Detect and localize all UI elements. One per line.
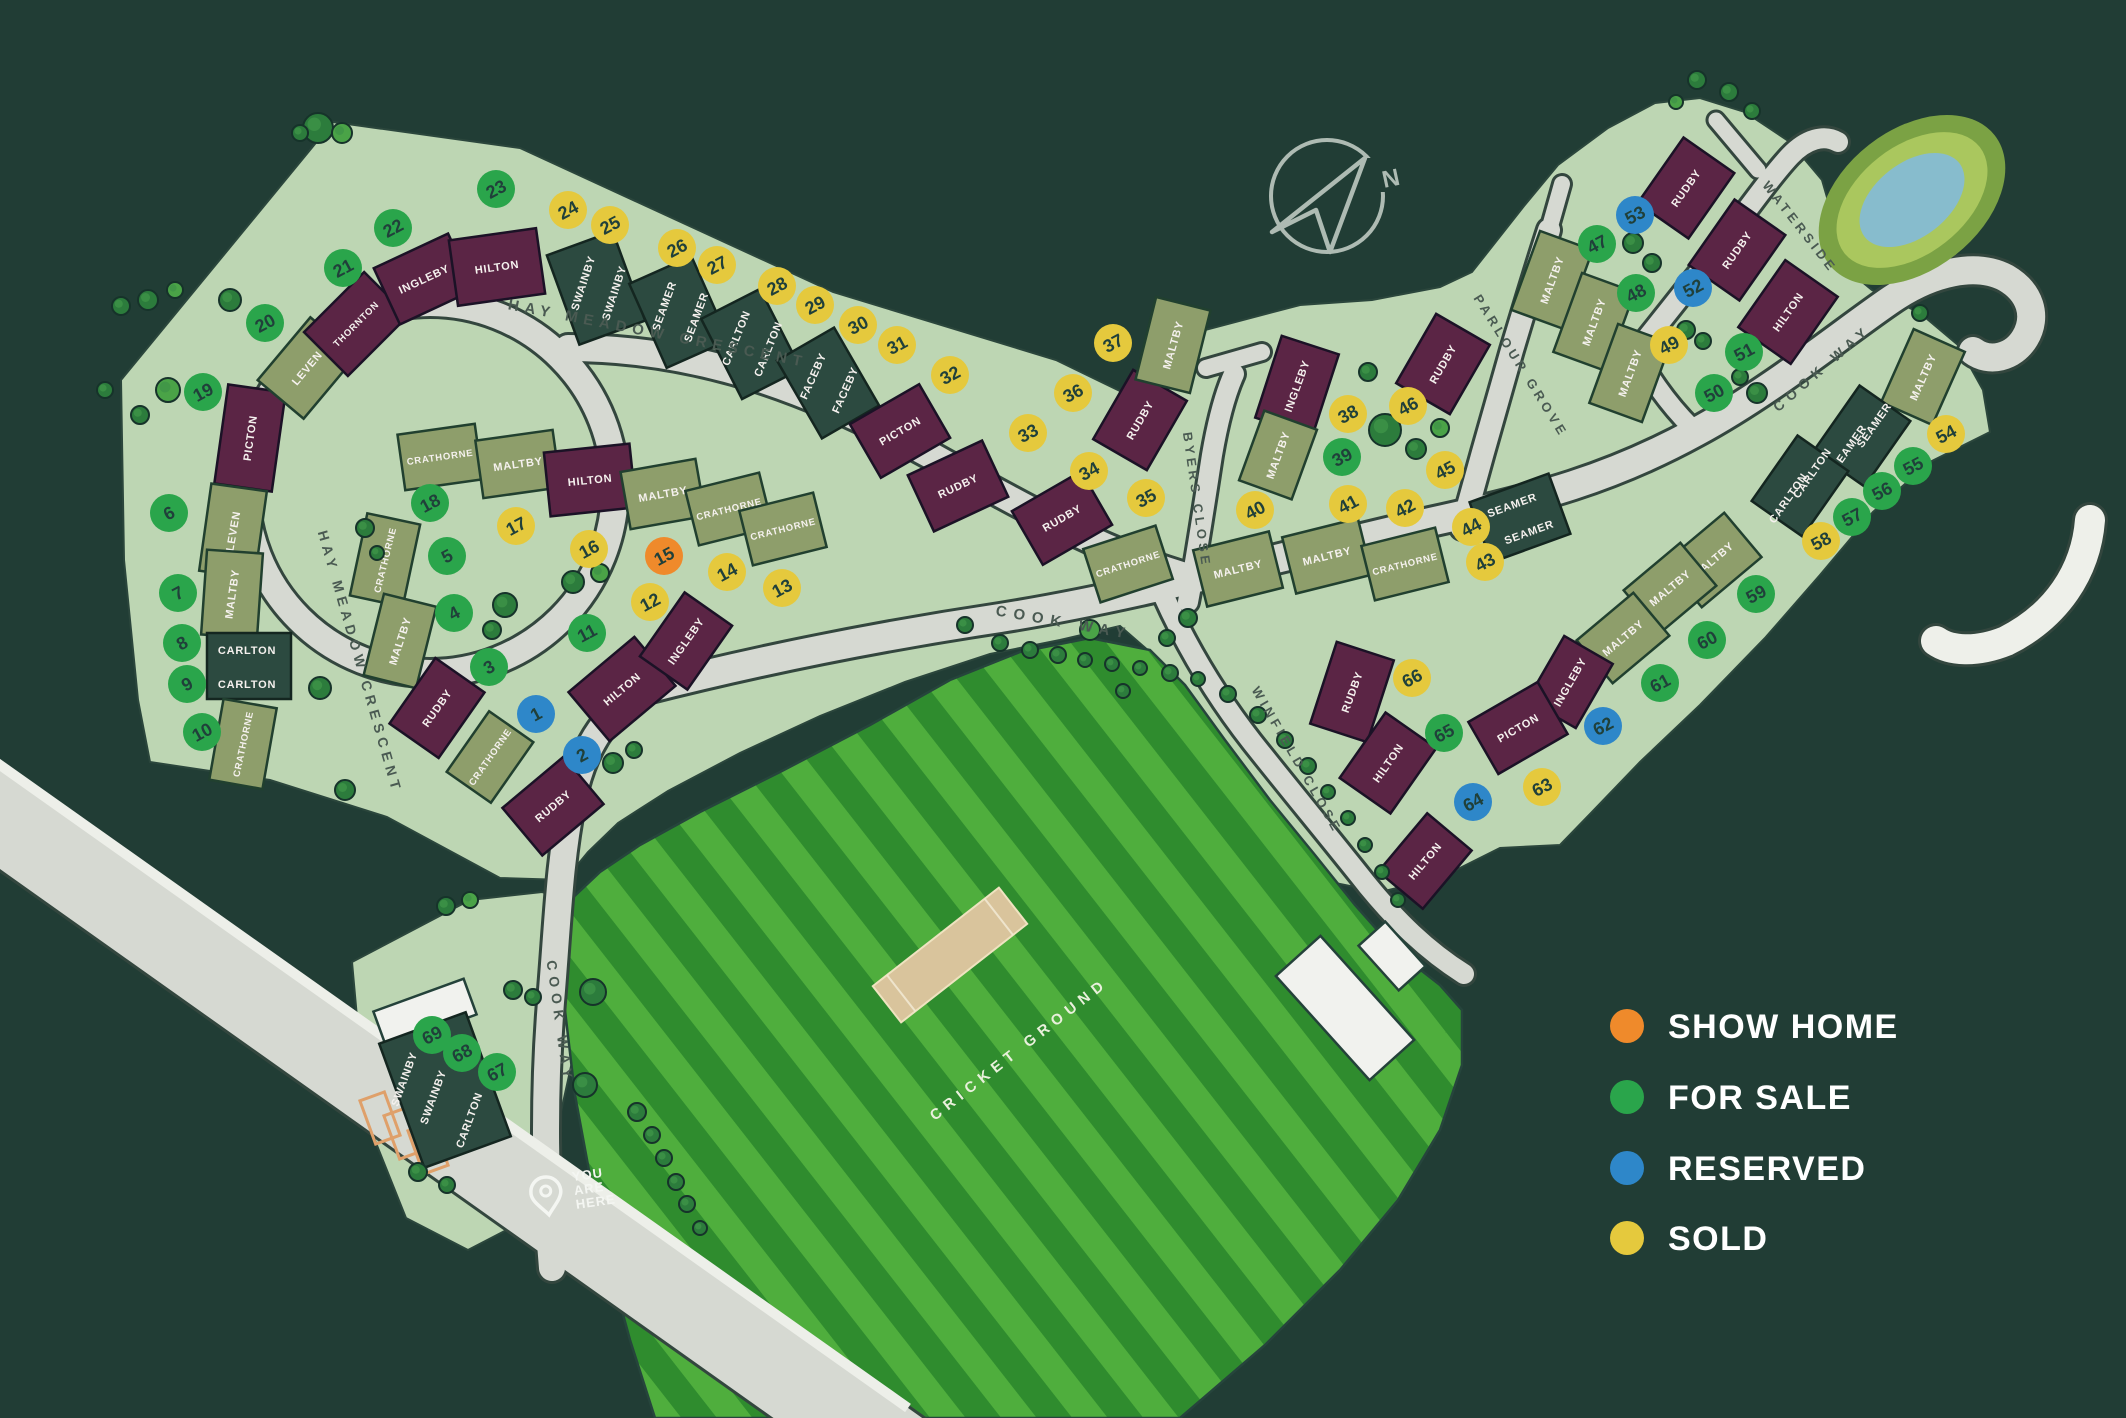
plot-61[interactable]: 61: [1641, 664, 1679, 702]
tree-highlight: [1052, 649, 1059, 656]
tree-highlight: [1362, 366, 1370, 374]
tree-highlight: [1393, 895, 1399, 901]
legend-label-for-sale: FOR SALE: [1668, 1079, 1852, 1117]
plot-62[interactable]: 62: [1584, 707, 1622, 745]
plot-55[interactable]: 55: [1894, 447, 1932, 485]
plot-30[interactable]: 30: [839, 306, 877, 344]
tree-highlight: [1626, 236, 1635, 245]
legend-swatch-show-home: [1610, 1009, 1644, 1043]
legend-label-sold: SOLD: [1668, 1220, 1768, 1258]
tree-highlight: [1182, 612, 1190, 620]
plot-44[interactable]: 44: [1452, 508, 1490, 546]
tree-highlight: [1252, 709, 1259, 716]
plot-12[interactable]: 12: [631, 583, 669, 621]
tree-highlight: [464, 894, 471, 901]
tree-highlight: [1377, 867, 1383, 873]
tree-highlight: [1914, 307, 1921, 314]
tree-highlight: [372, 548, 378, 554]
tree-highlight: [1080, 655, 1086, 661]
tree-highlight: [440, 900, 448, 908]
plot-32[interactable]: 32: [931, 356, 969, 394]
plot-16[interactable]: 16: [570, 530, 608, 568]
plot-28[interactable]: 28: [758, 267, 796, 305]
tree-highlight: [1723, 86, 1731, 94]
plot-51[interactable]: 51: [1725, 333, 1763, 371]
tree-highlight: [1750, 386, 1759, 395]
tree-highlight: [1360, 840, 1366, 846]
tree-highlight: [695, 1223, 701, 1229]
plot-42[interactable]: 42: [1386, 489, 1424, 527]
plot-2[interactable]: 2: [563, 736, 601, 774]
tree-highlight: [527, 991, 534, 998]
plot-23[interactable]: 23: [477, 170, 515, 208]
plot-13[interactable]: 13: [763, 569, 801, 607]
tree-highlight: [1222, 688, 1229, 695]
tree-highlight: [594, 567, 602, 575]
tree-highlight: [1161, 632, 1168, 639]
plot-39[interactable]: 39: [1323, 438, 1361, 476]
plot-9[interactable]: 9: [168, 665, 206, 703]
plot-49[interactable]: 49: [1650, 326, 1688, 364]
tree-highlight: [134, 409, 142, 417]
tree-highlight: [1434, 422, 1442, 430]
plot-63[interactable]: 63: [1523, 768, 1561, 806]
tree-highlight: [222, 292, 232, 302]
plot-36[interactable]: 36: [1054, 374, 1092, 412]
tree-highlight: [646, 1129, 653, 1136]
plot-58[interactable]: 58: [1802, 522, 1840, 560]
tree-highlight: [1671, 97, 1677, 103]
tree-highlight: [312, 680, 322, 690]
plot-50[interactable]: 50: [1695, 374, 1733, 412]
tree-highlight: [1646, 257, 1654, 265]
legend-swatch-for-sale: [1610, 1080, 1644, 1114]
tree-highlight: [507, 984, 515, 992]
development-map: PICTONLEVENTHORNTONINGLEBYHILTONSWAINBYS…: [0, 0, 2126, 1418]
tree-highlight: [994, 637, 1001, 644]
plot-47[interactable]: 47: [1578, 225, 1616, 263]
tree-highlight: [565, 574, 575, 584]
tree-highlight: [1343, 813, 1349, 819]
tree-highlight: [658, 1152, 665, 1159]
plot-45[interactable]: 45: [1426, 451, 1464, 489]
plot-69[interactable]: 69: [413, 1016, 451, 1054]
plot-26[interactable]: 26: [658, 229, 696, 267]
plot-31[interactable]: 31: [878, 326, 916, 364]
plot-57[interactable]: 57: [1833, 498, 1871, 536]
plot-38[interactable]: 38: [1329, 395, 1367, 433]
plot-34[interactable]: 34: [1070, 452, 1108, 490]
legend-swatch-sold: [1610, 1221, 1644, 1255]
tree-highlight: [441, 1179, 448, 1186]
plot-4[interactable]: 4: [435, 594, 473, 632]
plot-1[interactable]: 1: [517, 695, 555, 733]
tree-highlight: [681, 1198, 688, 1205]
house-label: CARLTON: [218, 679, 276, 691]
tree-highlight: [1691, 74, 1699, 82]
plot-11[interactable]: 11: [568, 614, 606, 652]
plot-54[interactable]: 54: [1927, 415, 1965, 453]
tree-highlight: [338, 783, 347, 792]
plot-3[interactable]: 3: [470, 648, 508, 686]
tree-highlight: [628, 744, 635, 751]
plot-24[interactable]: 24: [549, 191, 587, 229]
tree-highlight: [497, 597, 508, 608]
tree-highlight: [169, 284, 176, 291]
tree-highlight: [99, 384, 106, 391]
tree-highlight: [584, 983, 596, 995]
tree-highlight: [412, 1166, 420, 1174]
plot-53[interactable]: 53: [1616, 196, 1654, 234]
plot-43[interactable]: 43: [1466, 543, 1504, 581]
plot-21[interactable]: 21: [324, 249, 362, 287]
plot-37[interactable]: 37: [1094, 324, 1132, 362]
plot-48[interactable]: 48: [1617, 274, 1655, 312]
plot-17[interactable]: 17: [497, 507, 535, 545]
plot-46[interactable]: 46: [1389, 387, 1427, 425]
tree-highlight: [959, 619, 966, 626]
tree-highlight: [486, 624, 494, 632]
plot-25[interactable]: 25: [591, 206, 629, 244]
plot-60[interactable]: 60: [1688, 621, 1726, 659]
tree-highlight: [1024, 644, 1031, 651]
tree-highlight: [160, 382, 171, 393]
plot-33[interactable]: 33: [1009, 414, 1047, 452]
legend-label-reserved: RESERVED: [1668, 1150, 1866, 1188]
plot-67[interactable]: 67: [478, 1053, 516, 1091]
tree-highlight: [1135, 663, 1141, 669]
tree-highlight: [294, 127, 301, 134]
tree-highlight: [606, 756, 615, 765]
plot-7[interactable]: 7: [159, 574, 197, 612]
tree-highlight: [308, 118, 322, 132]
plot-14[interactable]: 14: [708, 553, 746, 591]
tree-highlight: [1164, 667, 1171, 674]
plot-56[interactable]: 56: [1863, 472, 1901, 510]
tree-highlight: [1409, 442, 1418, 451]
tree-highlight: [1193, 674, 1199, 680]
plot-5[interactable]: 5: [428, 537, 466, 575]
plot-40[interactable]: 40: [1236, 491, 1274, 529]
plot-18[interactable]: 18: [411, 484, 449, 522]
tree-highlight: [1107, 659, 1113, 665]
tree-highlight: [1734, 371, 1741, 378]
tree-highlight: [631, 1106, 639, 1114]
plot-20[interactable]: 20: [246, 304, 284, 342]
tree-highlight: [670, 1176, 677, 1183]
plot-10[interactable]: 10: [183, 713, 221, 751]
plot-35[interactable]: 35: [1127, 479, 1165, 517]
plot-66[interactable]: 66: [1393, 659, 1431, 697]
site-plan: PICTONLEVENTHORNTONINGLEBYHILTONSWAINBYS…: [0, 0, 2126, 1418]
plot-6[interactable]: 6: [150, 494, 188, 532]
plot-41[interactable]: 41: [1329, 485, 1367, 523]
plot-59[interactable]: 59: [1737, 575, 1775, 613]
tree-highlight: [1746, 105, 1753, 112]
tree-highlight: [335, 126, 344, 135]
plot-27[interactable]: 27: [698, 246, 736, 284]
tree-highlight: [141, 293, 150, 302]
tree-highlight: [577, 1077, 588, 1088]
plot-19[interactable]: 19: [184, 373, 222, 411]
plot-29[interactable]: 29: [796, 286, 834, 324]
tree-highlight: [1374, 419, 1388, 433]
plot-15[interactable]: 15: [645, 537, 683, 575]
legend-swatch-reserved: [1610, 1151, 1644, 1185]
plot-64[interactable]: 64: [1454, 783, 1492, 821]
legend-label-show-home: SHOW HOME: [1668, 1008, 1899, 1046]
tree-highlight: [1697, 335, 1704, 342]
house-label: CARLTON: [218, 645, 276, 657]
plot-52[interactable]: 52: [1674, 269, 1712, 307]
plot-22[interactable]: 22: [374, 209, 412, 247]
tree-highlight: [115, 300, 123, 308]
tree-highlight: [1118, 686, 1124, 692]
plot-8[interactable]: 8: [163, 624, 201, 662]
plot-65[interactable]: 65: [1425, 714, 1463, 752]
tree-highlight: [359, 522, 367, 530]
